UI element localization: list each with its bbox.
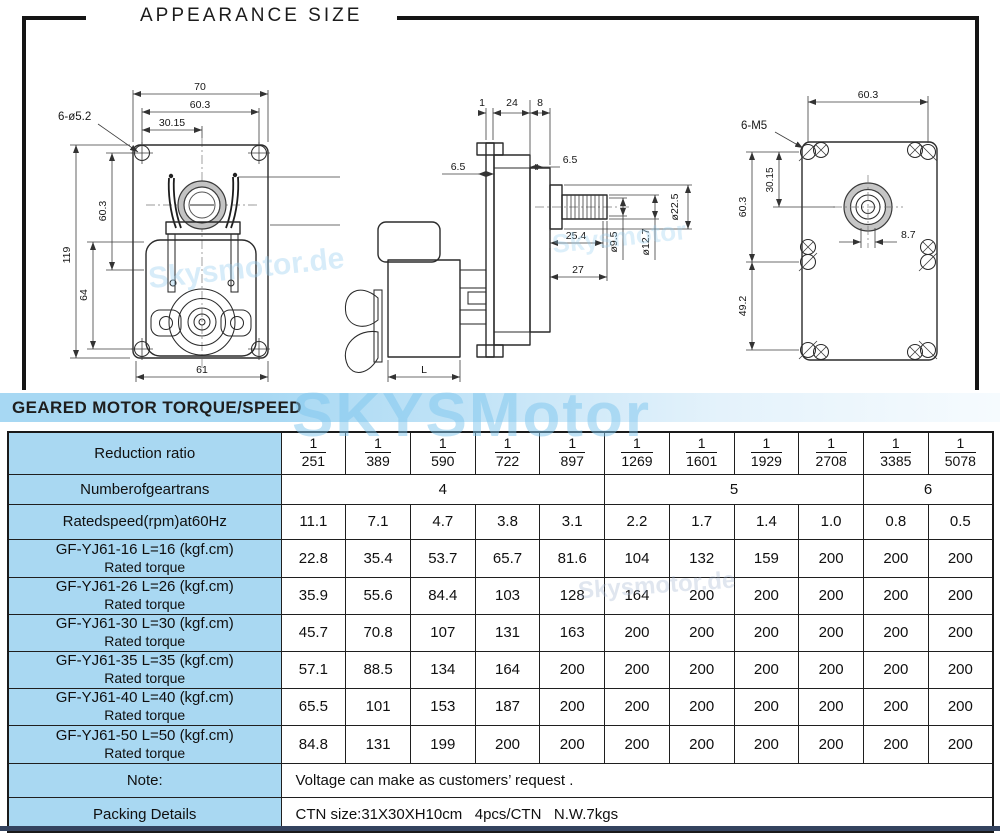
torque-cell: 107 [410,614,475,651]
dim-label: 70 [194,81,206,93]
torque-cell: 200 [540,688,605,725]
speed-cell: 0.8 [863,504,928,539]
table-row: GF-YJ61-50 L=50 (kgf.cm)Rated torque 84.… [8,725,993,763]
torque-cell: 200 [799,651,864,688]
dim-label: 30.15 [159,117,185,129]
row-label-model: GF-YJ61-16 L=16 (kgf.cm)Rated torque [8,539,281,577]
torque-cell: 200 [863,577,928,614]
torque-cell: 55.6 [346,577,411,614]
dim-label: 119 [61,246,73,263]
table-row: Numberofgeartrans 4 5 6 [8,474,993,504]
ratio-cell: 11929 [734,432,799,474]
frame-top-left-line [22,16,86,20]
torque-cell: 200 [734,688,799,725]
table-row: Ratedspeed(rpm)at60Hz 11.1 7.1 4.7 3.8 3… [8,504,993,539]
torque-cell: 200 [928,688,993,725]
speed-cell: 3.1 [540,504,605,539]
row-label-rated-speed: Ratedspeed(rpm)at60Hz [8,504,281,539]
torque-cell: 45.7 [281,614,346,651]
output-shaft-side [562,195,607,219]
dim-label: 8.7 [901,229,916,241]
speed-cell: 3.8 [475,504,540,539]
geartrans-cell: 6 [863,474,993,504]
torque-cell: 200 [669,614,734,651]
speed-cell: 1.0 [799,504,864,539]
torque-cell: 131 [346,725,411,763]
row-label-note: Note: [8,763,281,797]
dim-label: ø22.5 [669,193,681,220]
torque-cell: 53.7 [410,539,475,577]
torque-speed-table: Reduction ratio 1251 1389 1590 1722 1897… [7,431,994,833]
torque-cell: 65.7 [475,539,540,577]
torque-cell: 84.8 [281,725,346,763]
torque-cell: 200 [863,614,928,651]
ratio-cell: 1590 [410,432,475,474]
dim-label: 25.4 [566,230,587,242]
torque-cell: 200 [863,688,928,725]
torque-cell: 199 [410,725,475,763]
speed-cell: 2.2 [605,504,670,539]
torque-cell: 81.6 [540,539,605,577]
gearbox-rear-outline [802,142,937,360]
ratio-cell: 1389 [346,432,411,474]
note-text: Voltage can make as customers’ request . [281,763,993,797]
torque-cell: 200 [605,725,670,763]
torque-cell: 200 [734,725,799,763]
torque-cell: 200 [863,725,928,763]
ratio-cell: 11601 [669,432,734,474]
gearbox-side-outline [477,143,562,357]
dim-label: ø9.5 [608,231,620,252]
torque-cell: 200 [605,614,670,651]
ratio-cell: 15078 [928,432,993,474]
speed-cell: 1.7 [669,504,734,539]
torque-cell: 200 [734,577,799,614]
speed-cell: 0.5 [928,504,993,539]
row-label-reduction-ratio: Reduction ratio [8,432,281,474]
dim-callout: 6-M5 [741,120,767,132]
ratio-cell: 1897 [540,432,605,474]
front-view-drawing: 70 60.3 30.15 6-ø5.2 119 60.3 64 500±20 … [30,70,340,390]
dim-label: 64 [78,289,90,301]
torque-cell: 200 [928,539,993,577]
ratio-cell: 1251 [281,432,346,474]
rear-dimension-lines [746,96,928,350]
dim-label: 24 [506,97,518,109]
front-dimension-lines [70,90,340,382]
torque-cell: 200 [928,651,993,688]
speed-cell: 11.1 [281,504,346,539]
dim-label: L [421,364,427,376]
motor-side [378,222,486,357]
torque-cell: 70.8 [346,614,411,651]
torque-cell: 200 [928,577,993,614]
dim-label: 27 [572,264,584,276]
torque-cell: 200 [799,577,864,614]
ratio-cell: 11269 [605,432,670,474]
table-row: Note: Voltage can make as customers’ req… [8,763,993,797]
torque-cell: 200 [799,614,864,651]
torque-cell: 200 [799,688,864,725]
fan [345,290,382,372]
dim-label: 60.3 [737,197,749,218]
torque-cell: 163 [540,614,605,651]
geartrans-cell: 5 [605,474,864,504]
torque-cell: 200 [863,539,928,577]
motor-body [146,222,256,356]
torque-cell: 57.1 [281,651,346,688]
row-label-model: GF-YJ61-35 L=35 (kgf.cm)Rated torque [8,651,281,688]
torque-cell: 134 [410,651,475,688]
ratio-cell: 12708 [799,432,864,474]
torque-cell: 84.4 [410,577,475,614]
torque-cell: 164 [605,577,670,614]
side-view-drawing: 1 24 8 6.5 6.5 25.4 27 ø9.5 ø12.7 ø22.5 … [330,70,710,390]
dim-label: 60.3 [190,99,211,111]
ratio-cell: 1722 [475,432,540,474]
torque-cell: 200 [799,539,864,577]
torque-cell: 132 [669,539,734,577]
dim-label: 60.3 [97,201,109,222]
section-banner: GEARED MOTOR TORQUE/SPEED [0,393,1000,422]
torque-cell: 65.5 [281,688,346,725]
torque-cell: 22.8 [281,539,346,577]
torque-cell: 200 [540,725,605,763]
torque-cell: 35.9 [281,577,346,614]
torque-cell: 88.5 [346,651,411,688]
dim-label: 49.2 [737,296,749,317]
table-row: GF-YJ61-35 L=35 (kgf.cm)Rated torque 57.… [8,651,993,688]
torque-cell: 200 [540,651,605,688]
dim-callout: 6-ø5.2 [58,111,91,123]
row-label-model: GF-YJ61-40 L=40 (kgf.cm)Rated torque [8,688,281,725]
torque-cell: 131 [475,614,540,651]
torque-cell: 200 [799,725,864,763]
table-row: GF-YJ61-16 L=16 (kgf.cm)Rated torque 22.… [8,539,993,577]
torque-cell: 200 [475,725,540,763]
torque-cell: 35.4 [346,539,411,577]
speed-cell: 7.1 [346,504,411,539]
table-row: GF-YJ61-40 L=40 (kgf.cm)Rated torque 65.… [8,688,993,725]
section-banner-label: GEARED MOTOR TORQUE/SPEED [0,398,302,418]
datasheet-page: APPEARANCE SIZE [0,0,1000,834]
torque-cell: 200 [734,651,799,688]
rear-view-drawing: 60.3 6-M5 30.15 60.3 49.2 8.7 [735,80,1000,390]
row-label-model: GF-YJ61-26 L=26 (kgf.cm)Rated torque [8,577,281,614]
torque-cell: 153 [410,688,475,725]
dim-label: 61 [196,364,208,376]
bottom-divider-bar [0,826,1000,831]
speed-cell: 1.4 [734,504,799,539]
torque-cell: 200 [669,577,734,614]
dim-label: ø12.7 [640,228,652,255]
dim-label: 1 [479,97,485,109]
torque-cell: 200 [863,651,928,688]
dim-label: 6.5 [451,161,466,173]
torque-cell: 128 [540,577,605,614]
torque-cell: 200 [605,688,670,725]
dim-label: 8 [537,97,543,109]
frame-left-line [22,16,26,390]
row-label-model: GF-YJ61-50 L=50 (kgf.cm)Rated torque [8,725,281,763]
row-label-model: GF-YJ61-30 L=30 (kgf.cm)Rated torque [8,614,281,651]
torque-cell: 200 [928,725,993,763]
gearbox-front-outline [131,142,270,360]
torque-cell: 187 [475,688,540,725]
table-row: GF-YJ61-30 L=30 (kgf.cm)Rated torque 45.… [8,614,993,651]
table-row: GF-YJ61-26 L=26 (kgf.cm)Rated torque 35.… [8,577,993,614]
row-label-gear-trains: Numberofgeartrans [8,474,281,504]
torque-cell: 200 [734,614,799,651]
speed-cell: 4.7 [410,504,475,539]
ratio-cell: 13385 [863,432,928,474]
page-title: APPEARANCE SIZE [140,5,362,27]
torque-cell: 164 [475,651,540,688]
torque-cell: 159 [734,539,799,577]
table-row: Reduction ratio 1251 1389 1590 1722 1897… [8,432,993,474]
dim-label: 6.5 [563,154,578,166]
torque-cell: 200 [928,614,993,651]
frame-top-right-line [397,16,979,20]
torque-cell: 200 [669,688,734,725]
torque-cell: 200 [669,725,734,763]
torque-cell: 103 [475,577,540,614]
torque-cell: 200 [605,651,670,688]
torque-cell: 104 [605,539,670,577]
torque-cell: 101 [346,688,411,725]
dim-label: 60.3 [858,89,879,101]
geartrans-cell: 4 [281,474,605,504]
rear-shaft [833,175,903,248]
dim-label: 30.15 [765,167,776,192]
torque-cell: 200 [669,651,734,688]
